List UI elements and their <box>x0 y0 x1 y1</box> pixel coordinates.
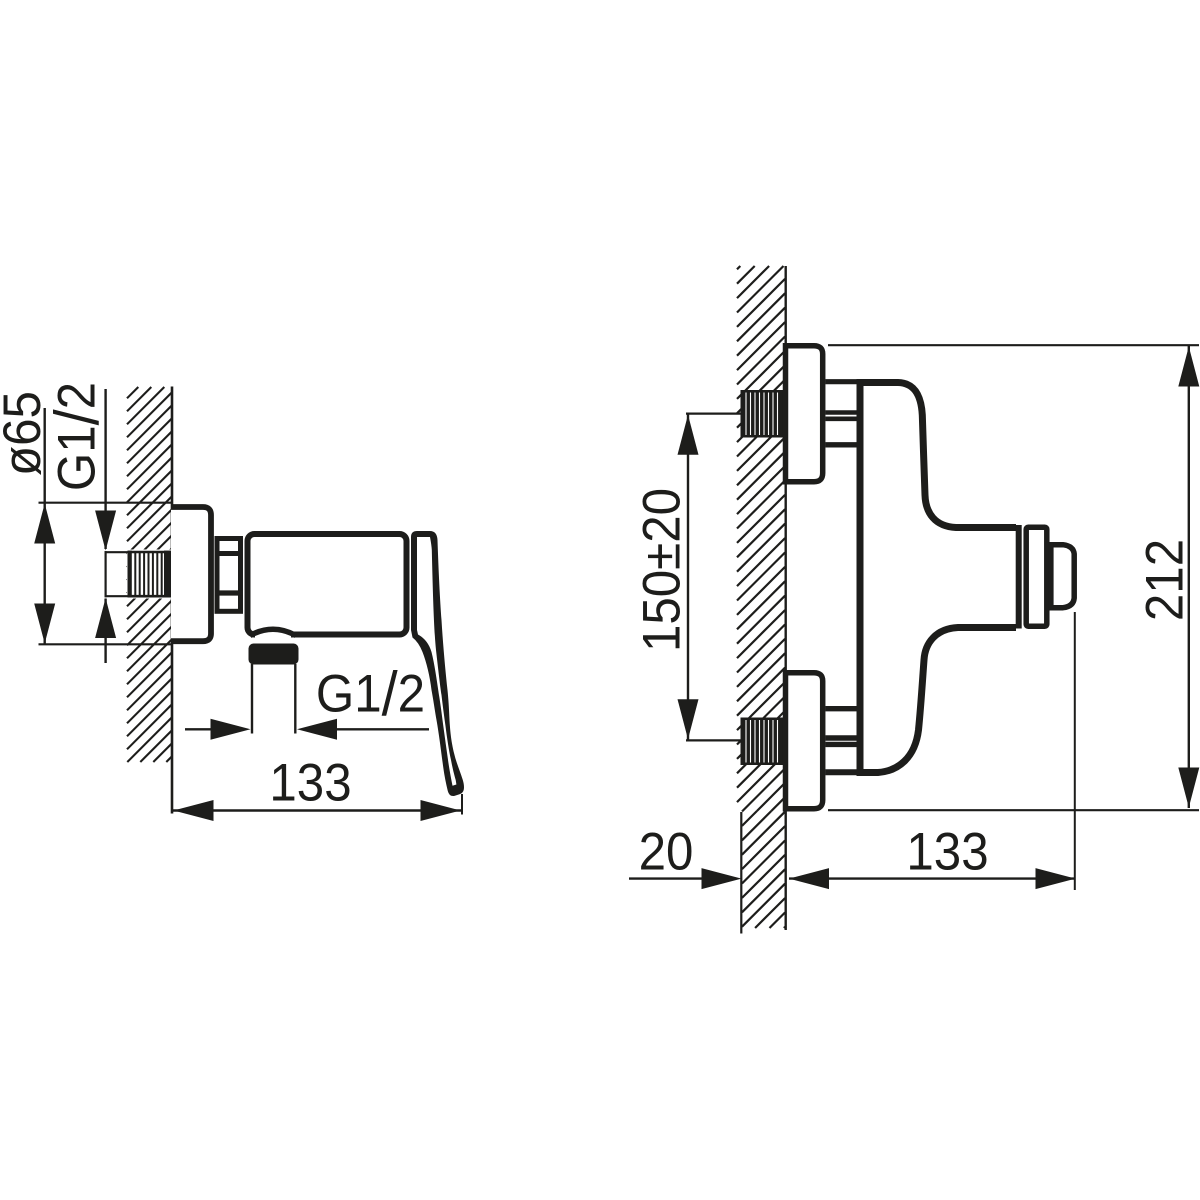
svg-text:20: 20 <box>639 822 694 881</box>
svg-text:ø65: ø65 <box>0 391 51 476</box>
svg-text:G1/2: G1/2 <box>316 659 425 728</box>
svg-text:150±20: 150±20 <box>632 488 691 652</box>
svg-text:212: 212 <box>1135 539 1194 621</box>
svg-text:133: 133 <box>269 753 351 812</box>
svg-text:133: 133 <box>906 822 988 881</box>
svg-text:G1/2: G1/2 <box>42 382 111 491</box>
